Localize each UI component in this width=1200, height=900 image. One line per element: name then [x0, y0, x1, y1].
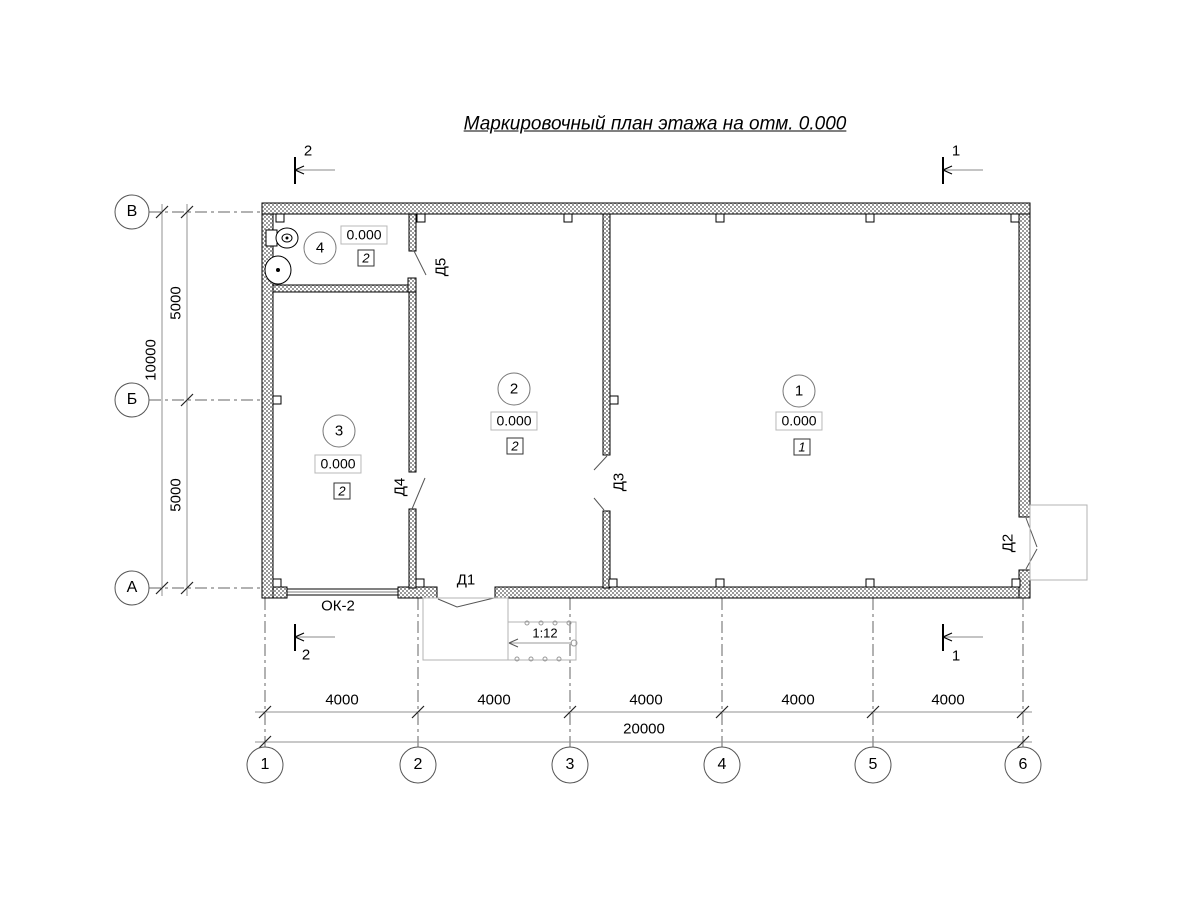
sink-icon — [265, 256, 291, 284]
room-2-number: 2 — [510, 382, 518, 397]
drawing-title: Маркировочный план этажа на отм. 0.000 — [464, 115, 847, 134]
column-markers — [273, 214, 1020, 587]
axis-circles — [115, 195, 1041, 783]
room-4-number: 4 — [316, 241, 324, 256]
door-label-d3: Д3 — [612, 473, 627, 492]
room-4-elevation: 0.000 — [340, 226, 387, 245]
dim-bottom-segment-5: 4000 — [931, 693, 964, 708]
axis-label-1: 1 — [261, 757, 270, 773]
dim-bottom-total: 20000 — [623, 722, 665, 737]
toilet-icon — [266, 228, 298, 248]
door-label-d4: Д4 — [393, 478, 408, 497]
exterior-walls — [262, 203, 1030, 598]
room-3-elevation: 0.000 — [314, 455, 361, 474]
dim-bottom-segment-4: 4000 — [781, 693, 814, 708]
dim-left-segment-2: 5000 — [169, 478, 184, 511]
ramp-slope-label: 1:12 — [530, 627, 559, 640]
room-number-circles — [304, 232, 815, 447]
room-2-finish-type: 2 — [507, 438, 524, 455]
axis-label-v: В — [127, 204, 138, 220]
axis-label-a: А — [127, 580, 138, 596]
door-label-d5: Д5 — [434, 258, 449, 277]
room-2-elevation: 0.000 — [490, 412, 537, 431]
dim-left-total: 10000 — [144, 339, 159, 381]
section-marks — [295, 157, 983, 651]
dim-bottom-segment-3: 4000 — [629, 693, 662, 708]
room-1-number: 1 — [795, 384, 803, 399]
door-label-d1: Д1 — [457, 573, 476, 588]
landing-d2 — [1030, 505, 1087, 580]
room-1-elevation: 0.000 — [775, 412, 822, 431]
window-ok2 — [287, 589, 398, 595]
dim-left-segment-1: 5000 — [169, 286, 184, 319]
room-3-number: 3 — [335, 424, 343, 439]
axis-label-3: 3 — [566, 757, 575, 773]
room-1-finish-type: 1 — [794, 439, 811, 456]
window-label-ok2: ОК-2 — [321, 599, 355, 614]
room-4-finish-type: 2 — [358, 250, 375, 267]
dim-bottom-segment-2: 4000 — [477, 693, 510, 708]
axis-label-4: 4 — [718, 757, 727, 773]
room-3-finish-type: 2 — [334, 483, 351, 500]
section-mark-bottom-right: 1 — [952, 649, 960, 664]
dim-bottom-segment-1: 4000 — [325, 693, 358, 708]
section-mark-top-left: 2 — [304, 144, 312, 159]
door-label-d2: Д2 — [1001, 534, 1016, 553]
axis-label-2: 2 — [414, 757, 423, 773]
section-mark-top-right: 1 — [952, 144, 960, 159]
floor-plan-canvas: Маркировочный план этажа на отм. 0.000 В… — [0, 0, 1200, 900]
axis-label-6: 6 — [1019, 757, 1028, 773]
section-mark-bottom-left: 2 — [302, 648, 310, 663]
axis-label-b: Б — [127, 392, 138, 408]
axis-label-5: 5 — [869, 757, 878, 773]
